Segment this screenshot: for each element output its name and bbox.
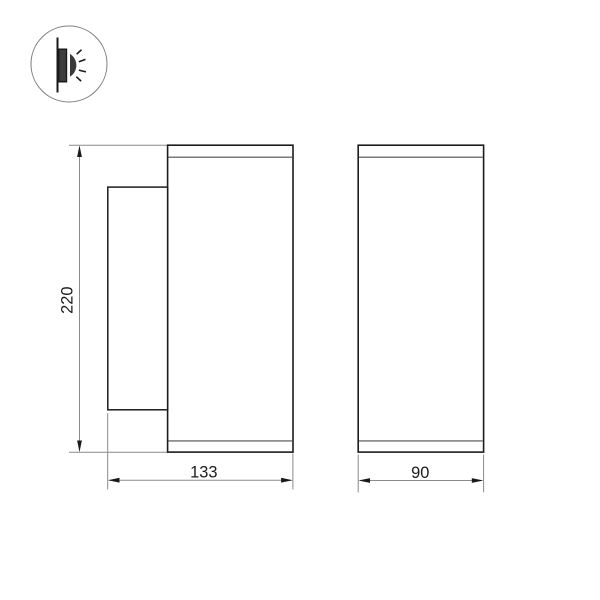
svg-text:90: 90 [411,464,429,482]
svg-text:220: 220 [59,287,77,314]
svg-text:133: 133 [190,464,217,482]
